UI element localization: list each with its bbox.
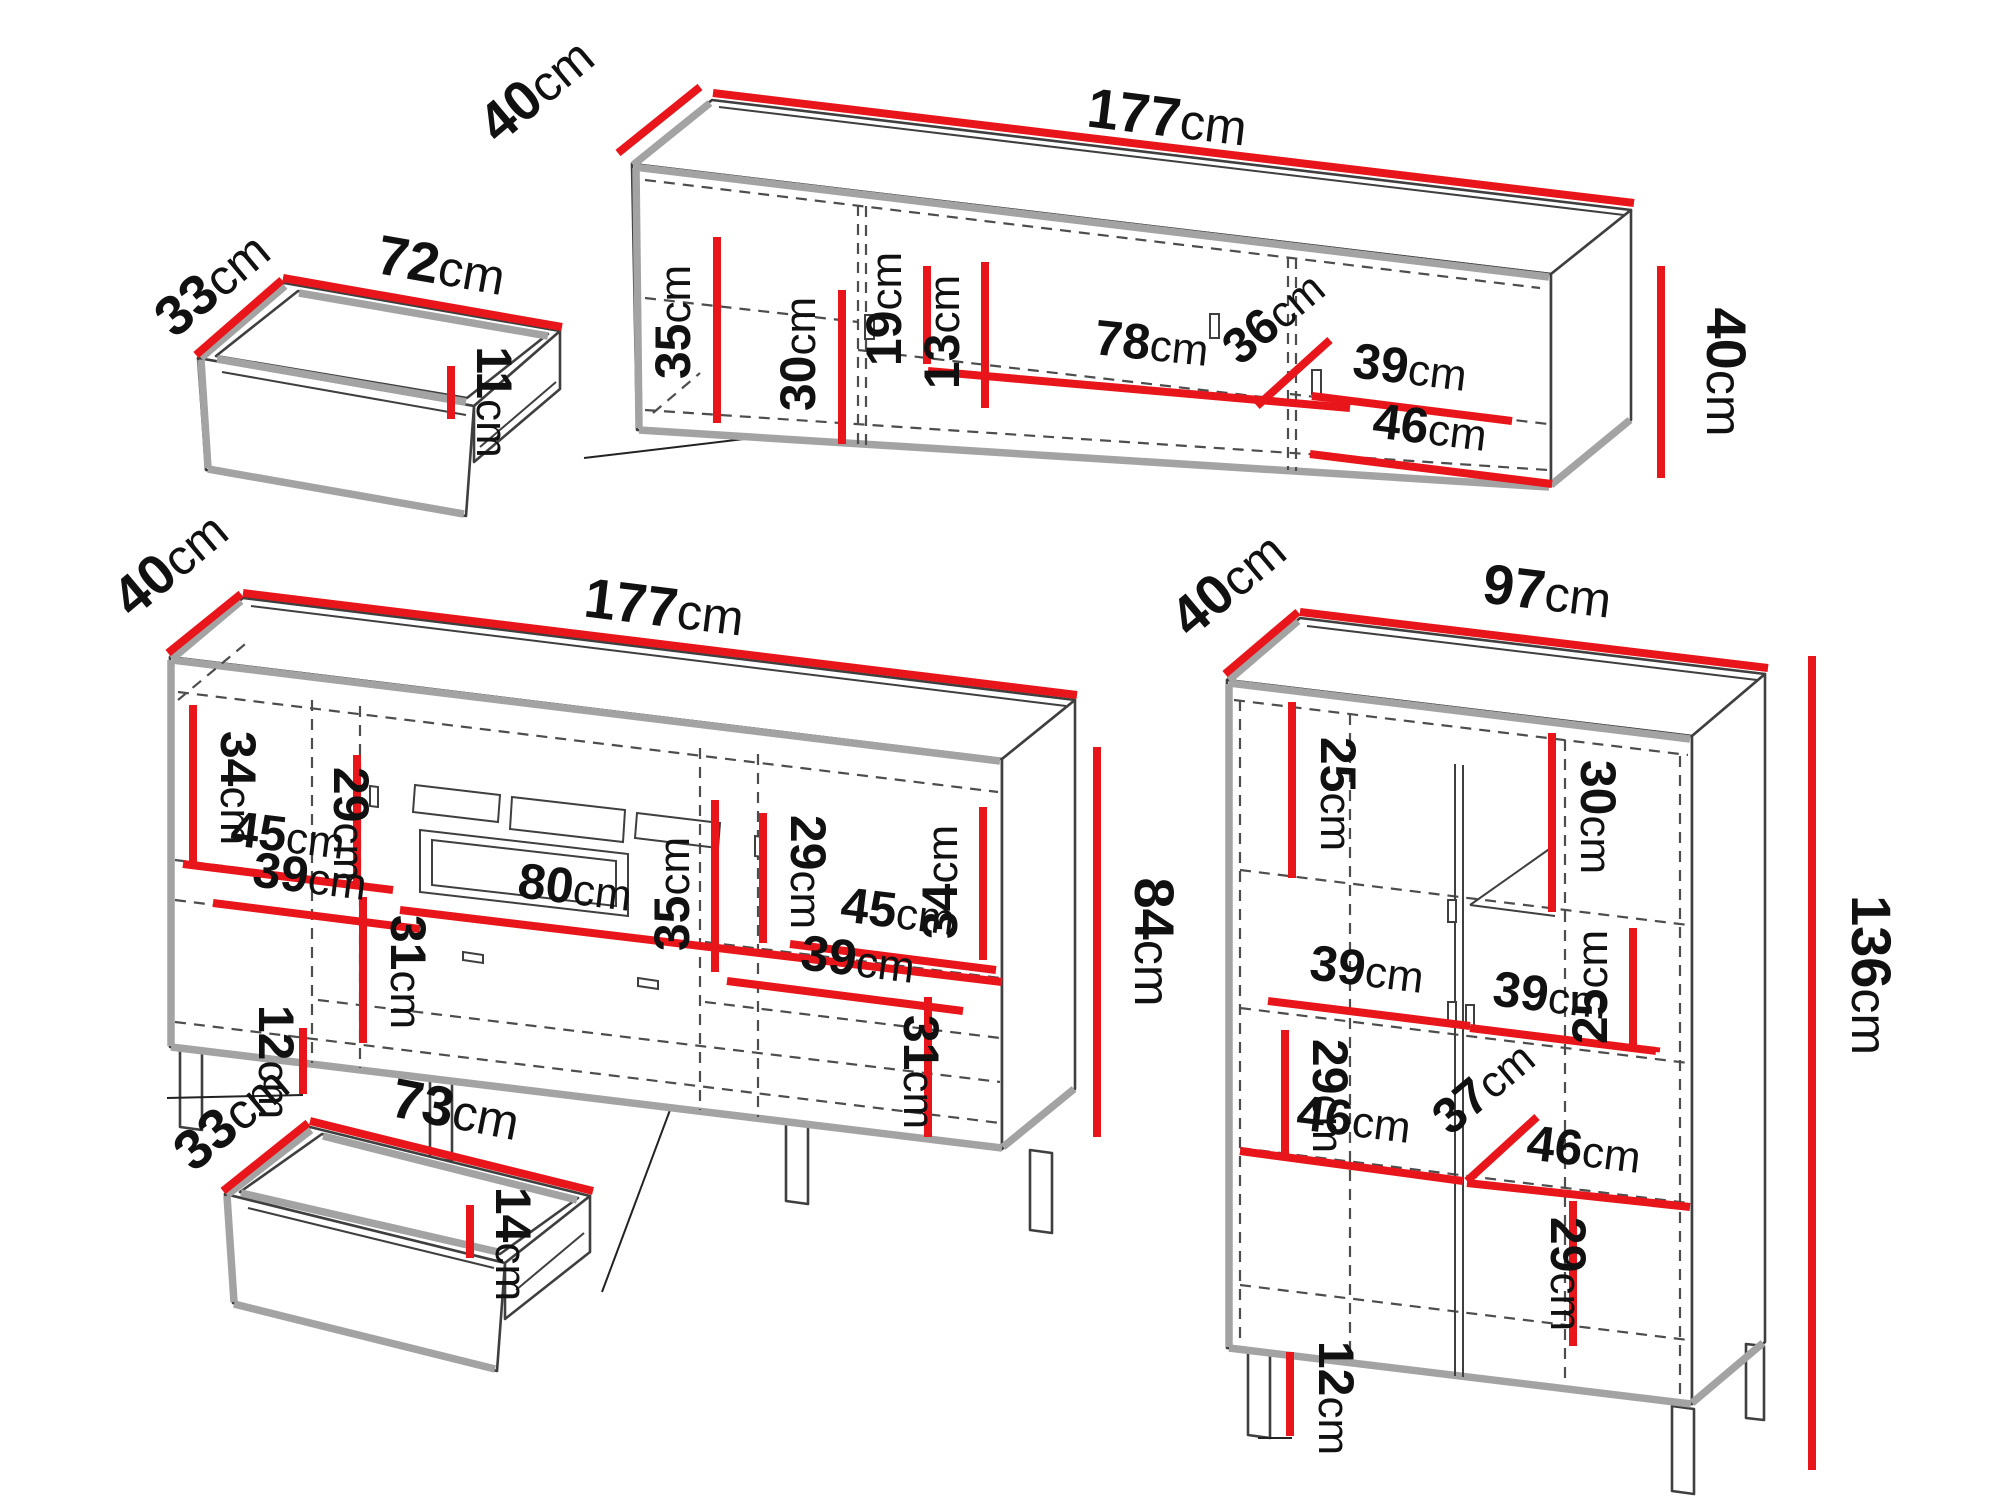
- dim-label-tall-cabinet-height: 136cm: [1840, 895, 1903, 1055]
- dim-label-sideboard-height: 84cm: [1123, 878, 1186, 1007]
- dim-label-tv-stand-height: 40cm: [1695, 308, 1758, 437]
- dim-label-tv-stand-left-section-height: 35cm: [645, 265, 701, 379]
- tall-cabinet: 40cm 97cm 136cm 25cm 30cm 25cm 39cm 39cm…: [1158, 517, 1903, 1494]
- large-drawer-bottom: 33cm 73cm 14cm: [161, 1051, 593, 1371]
- dim-label-tv-stand-depth: 40cm: [466, 23, 605, 154]
- dim-label-tall-cabinet-width: 97cm: [1480, 552, 1616, 630]
- sideboard-drawer-handle: [638, 978, 658, 989]
- tv-stand-door-handle: [1312, 370, 1321, 394]
- dim-label-tall-cabinet-bottom-right-height: 29cm: [1540, 1217, 1596, 1331]
- dim-label-sideboard-center-height: 35cm: [644, 837, 700, 951]
- sideboard-drawer-handle: [463, 952, 483, 963]
- tall-cabinet-side-face: [1692, 674, 1765, 1404]
- dim-label-sideboard-left-lower-height: 31cm: [380, 915, 436, 1029]
- dim-label-tv-stand-door-height: 30cm: [770, 297, 826, 411]
- dim-label-tv-stand-niche-height-back: 19cm: [856, 252, 912, 366]
- dim-label-tall-cabinet-top-left-height: 25cm: [1310, 737, 1366, 851]
- dim-label-tall-cabinet-leg-height: 12cm: [1308, 1341, 1364, 1455]
- dim-label-sideboard-right-lower-height: 31cm: [893, 1015, 949, 1129]
- small-drawer-top: 33cm 72cm 11cm: [142, 217, 562, 516]
- sideboard-side-face: [1002, 700, 1075, 1149]
- dim-label-small-drawer-front-height: 11cm: [466, 346, 522, 458]
- dim-label-tall-cabinet-top-right-height: 30cm: [1570, 760, 1626, 874]
- furniture-dimensions-diagram: 33cm 72cm 11cm: [0, 0, 2000, 1499]
- tall-cabinet-door-handle: [1448, 900, 1456, 922]
- dim-label-tv-stand-niche-height-front: 13cm: [914, 275, 970, 389]
- tv-stand: 40cm 177cm 40cm 35cm 30cm 19cm 13cm 78cm…: [466, 23, 1758, 487]
- dim-label-large-drawer-front-height: 14cm: [485, 1187, 541, 1301]
- dim-label-tv-stand-width: 177cm: [1084, 76, 1251, 158]
- dim-label-sideboard-right-inner-height: 29cm: [780, 815, 836, 929]
